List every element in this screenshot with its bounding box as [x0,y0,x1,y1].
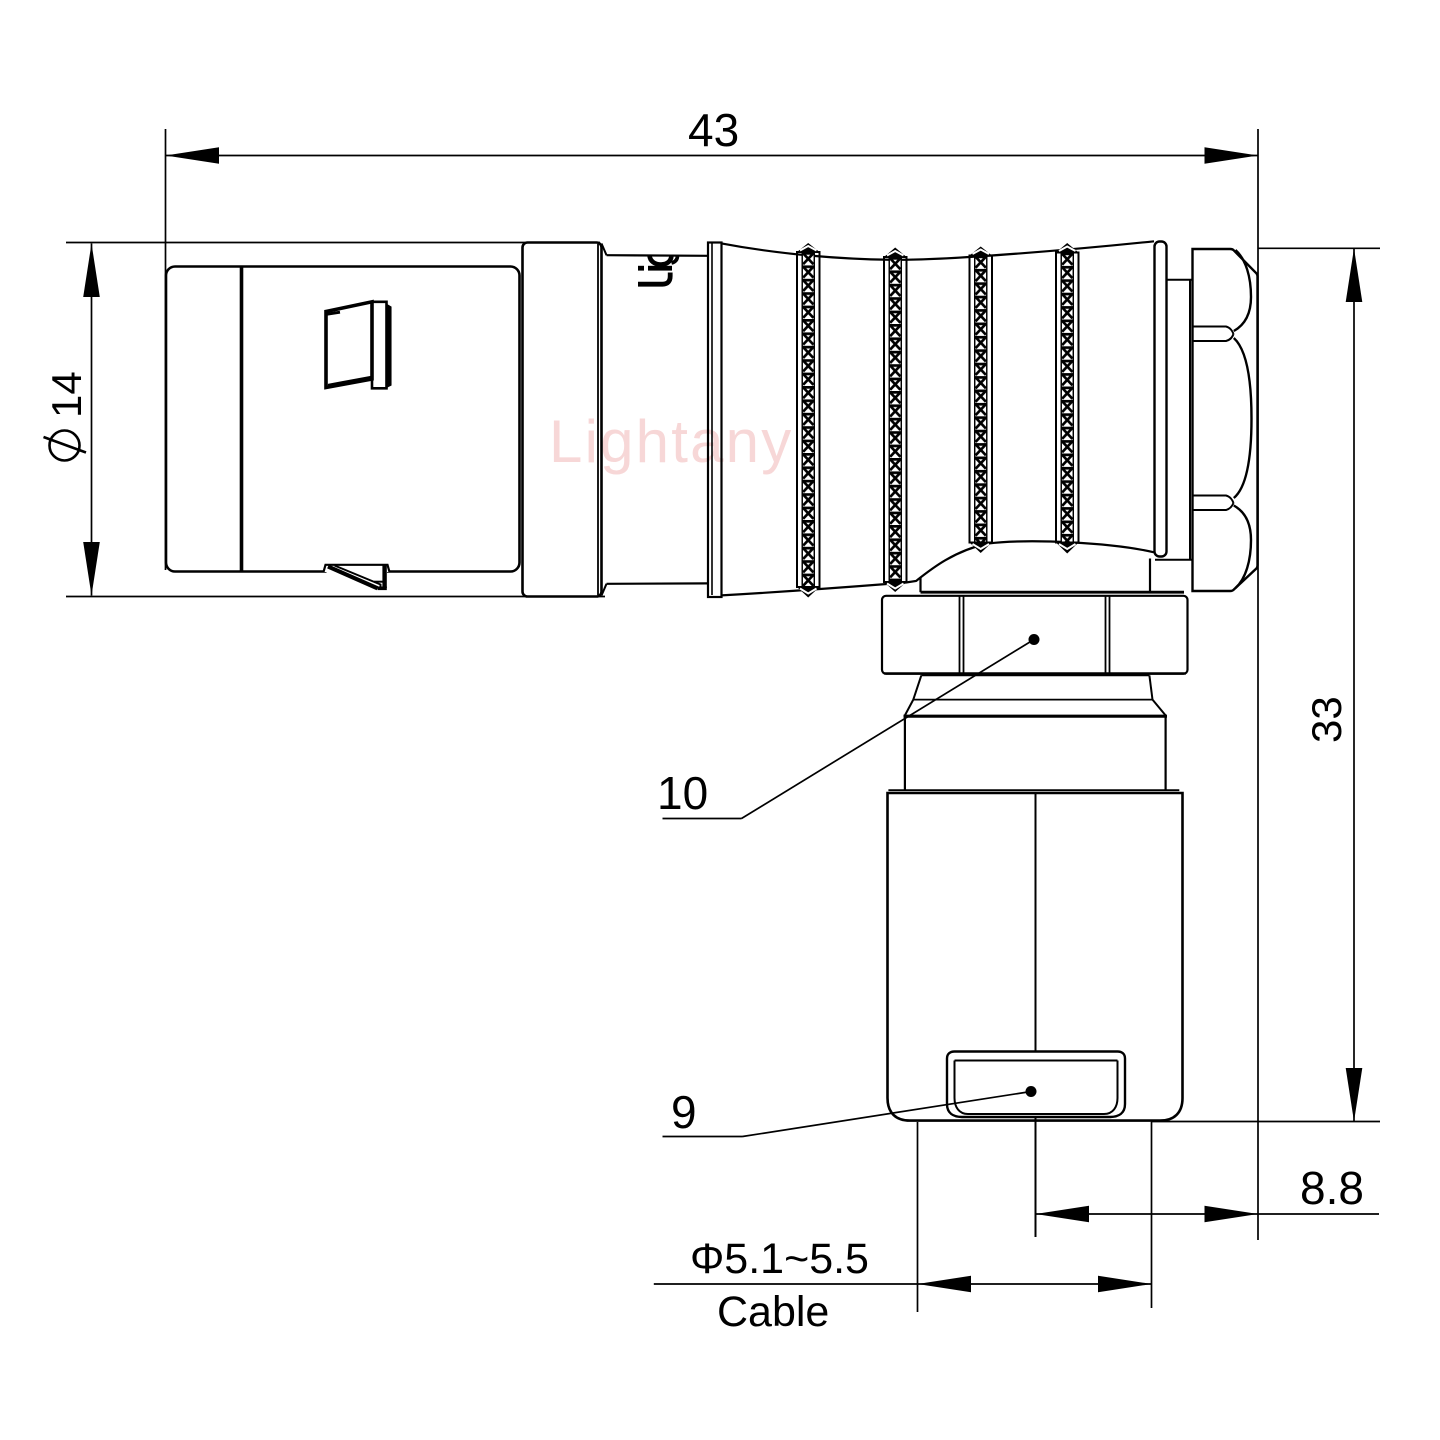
svg-text:10: 10 [657,767,708,819]
svg-text:8.8: 8.8 [1300,1162,1364,1214]
svg-text:33: 33 [1303,696,1350,743]
svg-text:Φ5.1~5.5: Φ5.1~5.5 [690,1235,869,1283]
svg-text:9: 9 [671,1086,697,1138]
svg-text:Lightany: Lightany [549,408,793,475]
svg-text:14: 14 [43,371,90,418]
svg-text:Cable: Cable [717,1288,829,1336]
svg-text:43: 43 [688,104,739,156]
